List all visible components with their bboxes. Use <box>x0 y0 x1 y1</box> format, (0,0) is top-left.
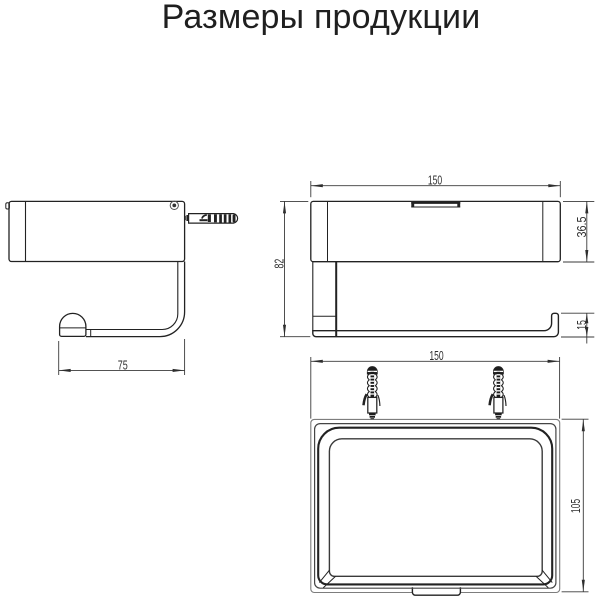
svg-text:105: 105 <box>568 499 583 513</box>
svg-text:82: 82 <box>272 259 287 269</box>
svg-text:150: 150 <box>429 348 443 363</box>
svg-text:75: 75 <box>118 357 128 372</box>
svg-text:36.5: 36.5 <box>574 217 589 238</box>
svg-text:150: 150 <box>428 172 442 187</box>
svg-text:15: 15 <box>574 320 589 330</box>
